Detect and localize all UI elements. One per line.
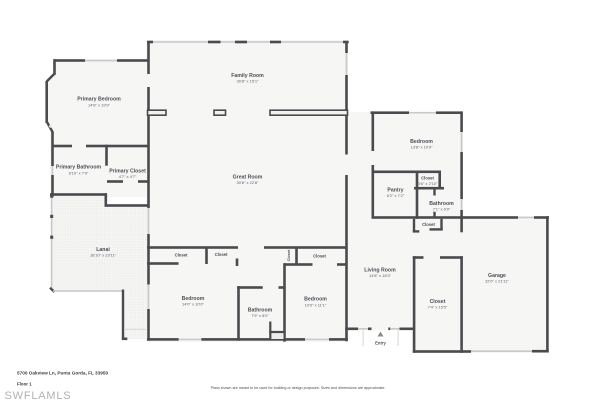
svg-text:30'8" x 22'8": 30'8" x 22'8" bbox=[237, 180, 260, 185]
svg-text:3'6" x 2'10": 3'6" x 2'10" bbox=[418, 181, 438, 186]
svg-text:Entry: Entry bbox=[375, 340, 386, 345]
svg-text:22'0" x 21'11": 22'0" x 21'11" bbox=[485, 279, 509, 284]
svg-text:30'8" x 15'1": 30'8" x 15'1" bbox=[237, 79, 260, 84]
svg-text:14'0" x 10'0": 14'0" x 10'0" bbox=[182, 302, 205, 307]
svg-text:4'7" x 4'7": 4'7" x 4'7" bbox=[119, 174, 137, 179]
svg-text:7'4" x 15'5": 7'4" x 15'5" bbox=[428, 305, 448, 310]
svg-text:Closet: Closet bbox=[421, 176, 434, 181]
svg-text:13'8" x 10'9": 13'8" x 10'9" bbox=[411, 145, 434, 150]
svg-text:Closet: Closet bbox=[175, 253, 188, 258]
svg-text:14'8" x 18'3": 14'8" x 18'3" bbox=[369, 273, 392, 278]
svg-text:5700 Oakview Ln, Punta Gorda,: 5700 Oakview Ln, Punta Gorda, FL 33950 bbox=[17, 371, 108, 376]
svg-text:6'2" x 7'2": 6'2" x 7'2" bbox=[387, 193, 405, 198]
svg-text:Closet: Closet bbox=[313, 254, 326, 259]
svg-text:Plans shown are meant to be us: Plans shown are meant to be used for bui… bbox=[211, 386, 386, 390]
svg-text:10'0" x 11'1": 10'0" x 11'1" bbox=[305, 302, 327, 307]
svg-text:7'1" x 6'9": 7'1" x 6'9" bbox=[433, 207, 451, 212]
svg-text:Floor 1: Floor 1 bbox=[17, 382, 32, 387]
svg-text:7'9" x 8'0": 7'9" x 8'0" bbox=[251, 313, 269, 318]
svg-text:Closet: Closet bbox=[422, 222, 435, 227]
svg-text:16'10" x 23'11": 16'10" x 23'11" bbox=[90, 253, 117, 258]
svg-text:Closet: Closet bbox=[215, 252, 228, 257]
svg-text:SWFLAMLS: SWFLAMLS bbox=[5, 390, 72, 402]
svg-text:8'10" x 7'9": 8'10" x 7'9" bbox=[69, 170, 89, 175]
svg-text:14'8" x 19'9": 14'8" x 19'9" bbox=[88, 103, 111, 108]
svg-text:Closet: Closet bbox=[287, 249, 291, 261]
